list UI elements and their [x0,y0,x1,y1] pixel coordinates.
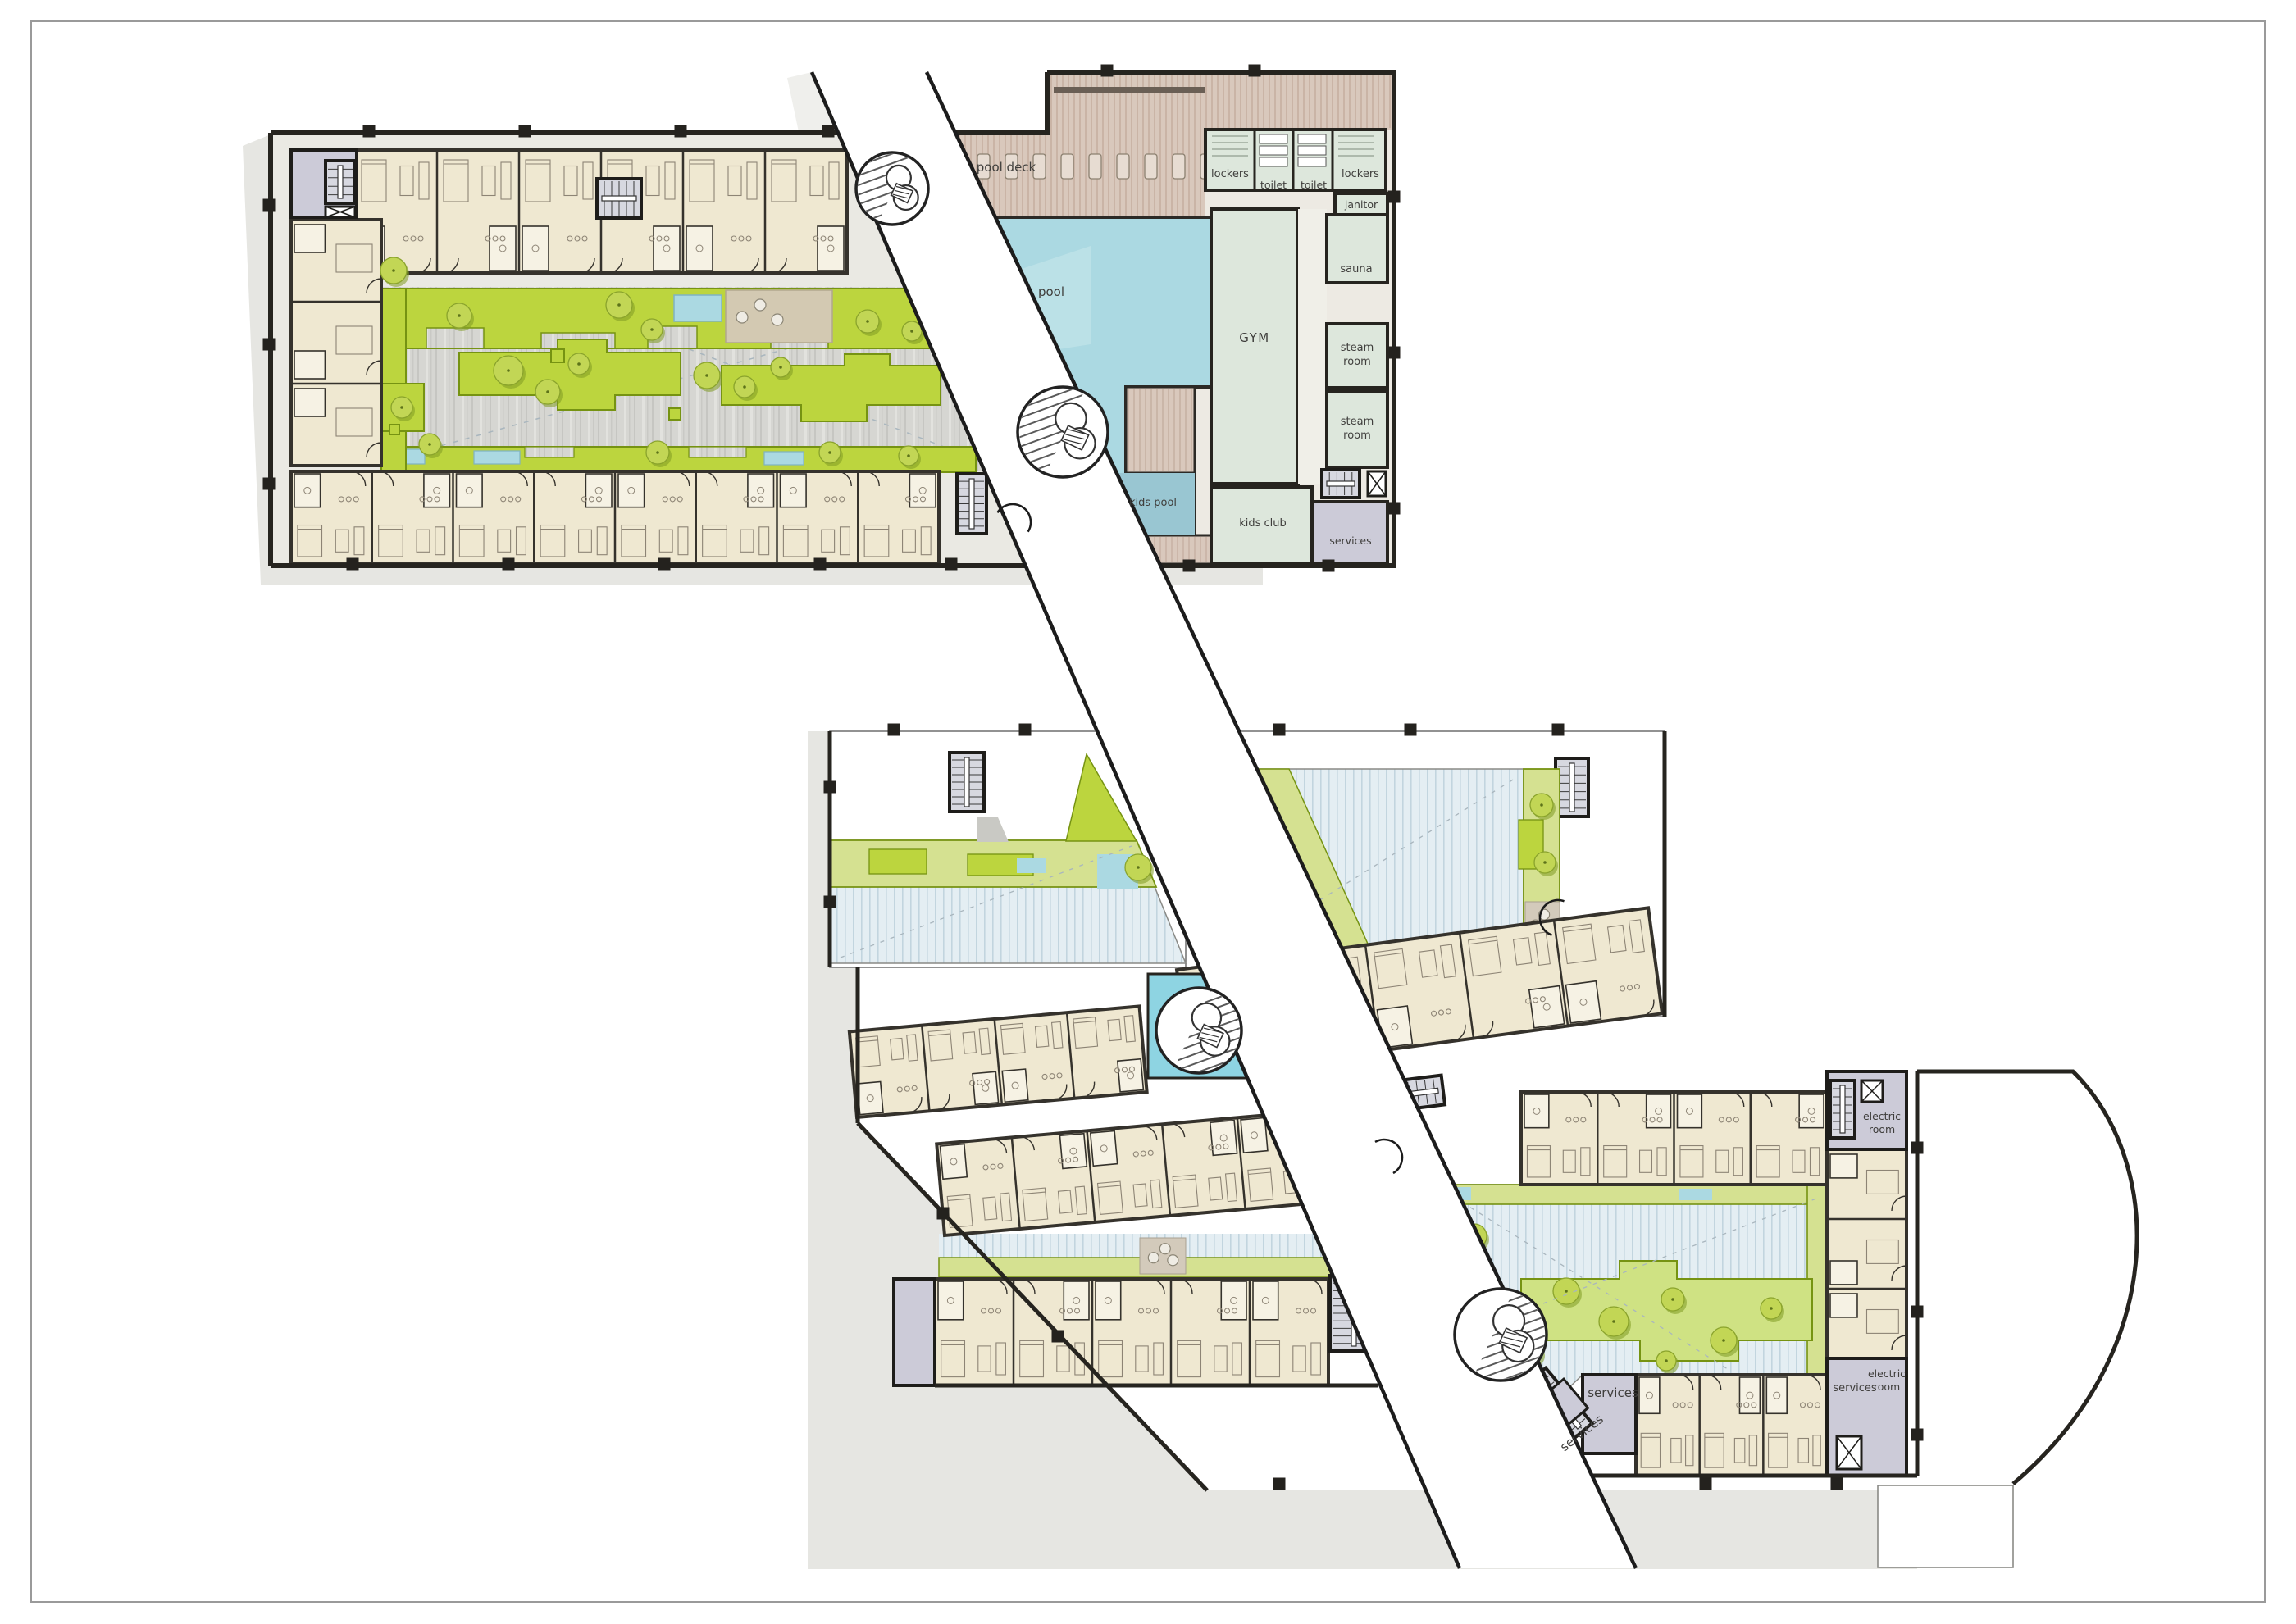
svg-text:room: room [1874,1381,1900,1393]
svg-text:room: room [1343,356,1371,368]
floor-plan-canvas: pool deck pool kids pool GYM sauna steam… [0,0,2296,1624]
label-electric-room-1: electric [1868,1367,1906,1380]
label-services-b3: services [1833,1382,1877,1394]
label-gym: GYM [1239,330,1269,345]
label-pool: pool [1038,284,1064,299]
label-kids-pool: kids pool [1129,497,1177,509]
label-lockers-left: lockers [1211,168,1249,180]
label-lockers-right: lockers [1342,168,1379,180]
floor-plan-page: pool deck pool kids pool GYM sauna steam… [0,0,2296,1624]
label-janitor: janitor [1344,198,1378,211]
label-steam-room-1: steam [1341,342,1374,354]
label-pool-deck: pool deck [977,160,1036,175]
label-steam-room-2: steam [1341,416,1374,428]
label-toilet-1: toilet [1260,179,1287,191]
label-services-b1: services [1588,1385,1638,1400]
svg-text:room: room [1343,430,1371,442]
label-electric-room-2: electric [1863,1110,1901,1122]
label-kids-club: kids club [1239,517,1287,530]
top-building [271,72,1394,566]
label-toilet-2: toilet [1301,179,1327,191]
label-services-top: services [1329,535,1371,547]
label-sauna: sauna [1340,263,1372,275]
svg-text:room: room [1869,1123,1895,1135]
